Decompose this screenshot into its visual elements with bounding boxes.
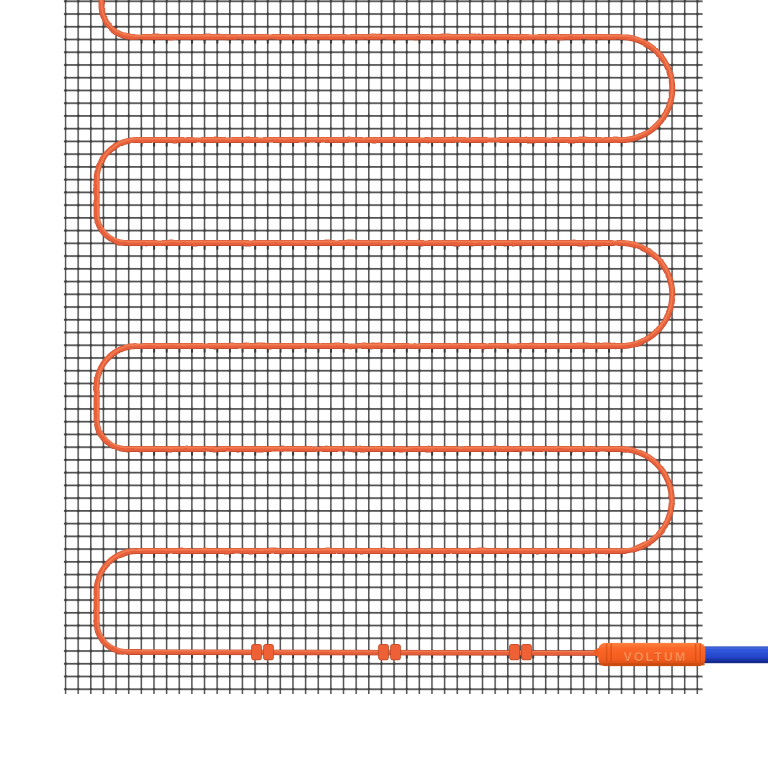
svg-text:VOLTUM: VOLTUM xyxy=(624,650,688,664)
